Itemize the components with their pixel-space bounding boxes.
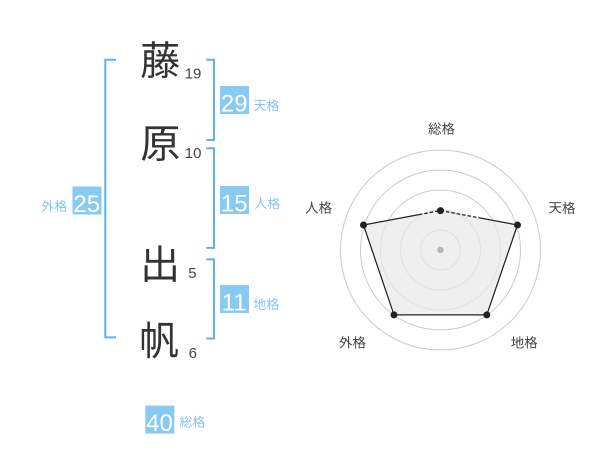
svg-text:5: 5 [188, 265, 196, 282]
svg-text:10: 10 [185, 145, 202, 162]
svg-text:29: 29 [221, 90, 248, 117]
svg-text:25: 25 [73, 191, 100, 218]
svg-text:40: 40 [146, 410, 173, 437]
svg-text:11: 11 [222, 289, 247, 316]
svg-text:6: 6 [189, 345, 197, 362]
svg-text:15: 15 [221, 190, 248, 217]
svg-text:19: 19 [185, 65, 202, 82]
